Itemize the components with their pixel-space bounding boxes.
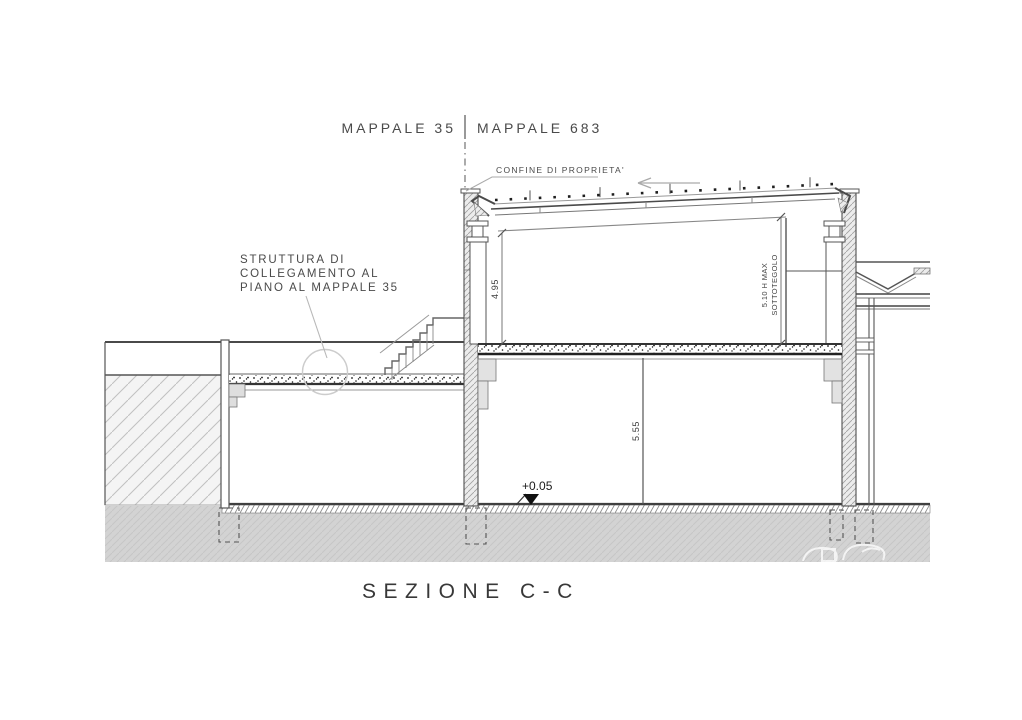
left-column xyxy=(470,242,486,344)
dim-ground-floor-height: 5.55 xyxy=(631,421,641,441)
dimension-lines xyxy=(498,213,785,348)
stair-stringer-line xyxy=(380,315,429,353)
main-floor-slab xyxy=(478,344,842,409)
annotation-line2: COLLEGAMENTO AL xyxy=(240,268,379,280)
drawing-title: SEZIONE C-C xyxy=(362,580,580,603)
parcel-label-left: MAPPALE 35 xyxy=(341,120,456,136)
earth-hatch-block xyxy=(105,375,222,505)
ground-level-value: +0.05 xyxy=(522,479,553,493)
callout-leader-line xyxy=(306,296,327,358)
dim-upper-height: 4.95 xyxy=(490,279,500,299)
left-terrain xyxy=(105,342,466,505)
interior-columns xyxy=(467,221,845,344)
beam-corbel xyxy=(229,384,245,397)
beam-corbel-step xyxy=(229,397,237,407)
parcel-label-right: MAPPALE 683 xyxy=(477,120,602,136)
right-annex xyxy=(856,262,930,505)
ground-band xyxy=(105,504,930,562)
slope-arrow xyxy=(638,178,700,188)
interior-ceiling-line xyxy=(498,217,786,231)
callout-circle xyxy=(303,350,348,395)
architectural-section-sheet: MAPPALE 35 MAPPALE 683 CONFINE DI PROPRI… xyxy=(0,0,1022,720)
left-wall-cap xyxy=(461,189,480,193)
roof-tile-dots xyxy=(495,184,835,200)
roof xyxy=(472,177,850,231)
annotation-line1: STRUTTURA DI xyxy=(240,254,345,266)
connection-stairs xyxy=(380,315,466,380)
right-column xyxy=(826,242,842,344)
annotation-line3: PIANO AL MAPPALE 35 xyxy=(240,282,399,294)
boundary-label: CONFINE DI PROPRIETA' xyxy=(496,165,625,175)
dim-max-height: 5.10 H MAX xyxy=(760,263,769,307)
dim-max-height-ref: SOTTOTEGOLO xyxy=(770,254,779,315)
boundary-leader-line xyxy=(466,177,598,191)
section-drawing: MAPPALE 35 MAPPALE 683 CONFINE DI PROPRI… xyxy=(0,0,1022,720)
ground-surface-strip xyxy=(222,505,930,513)
